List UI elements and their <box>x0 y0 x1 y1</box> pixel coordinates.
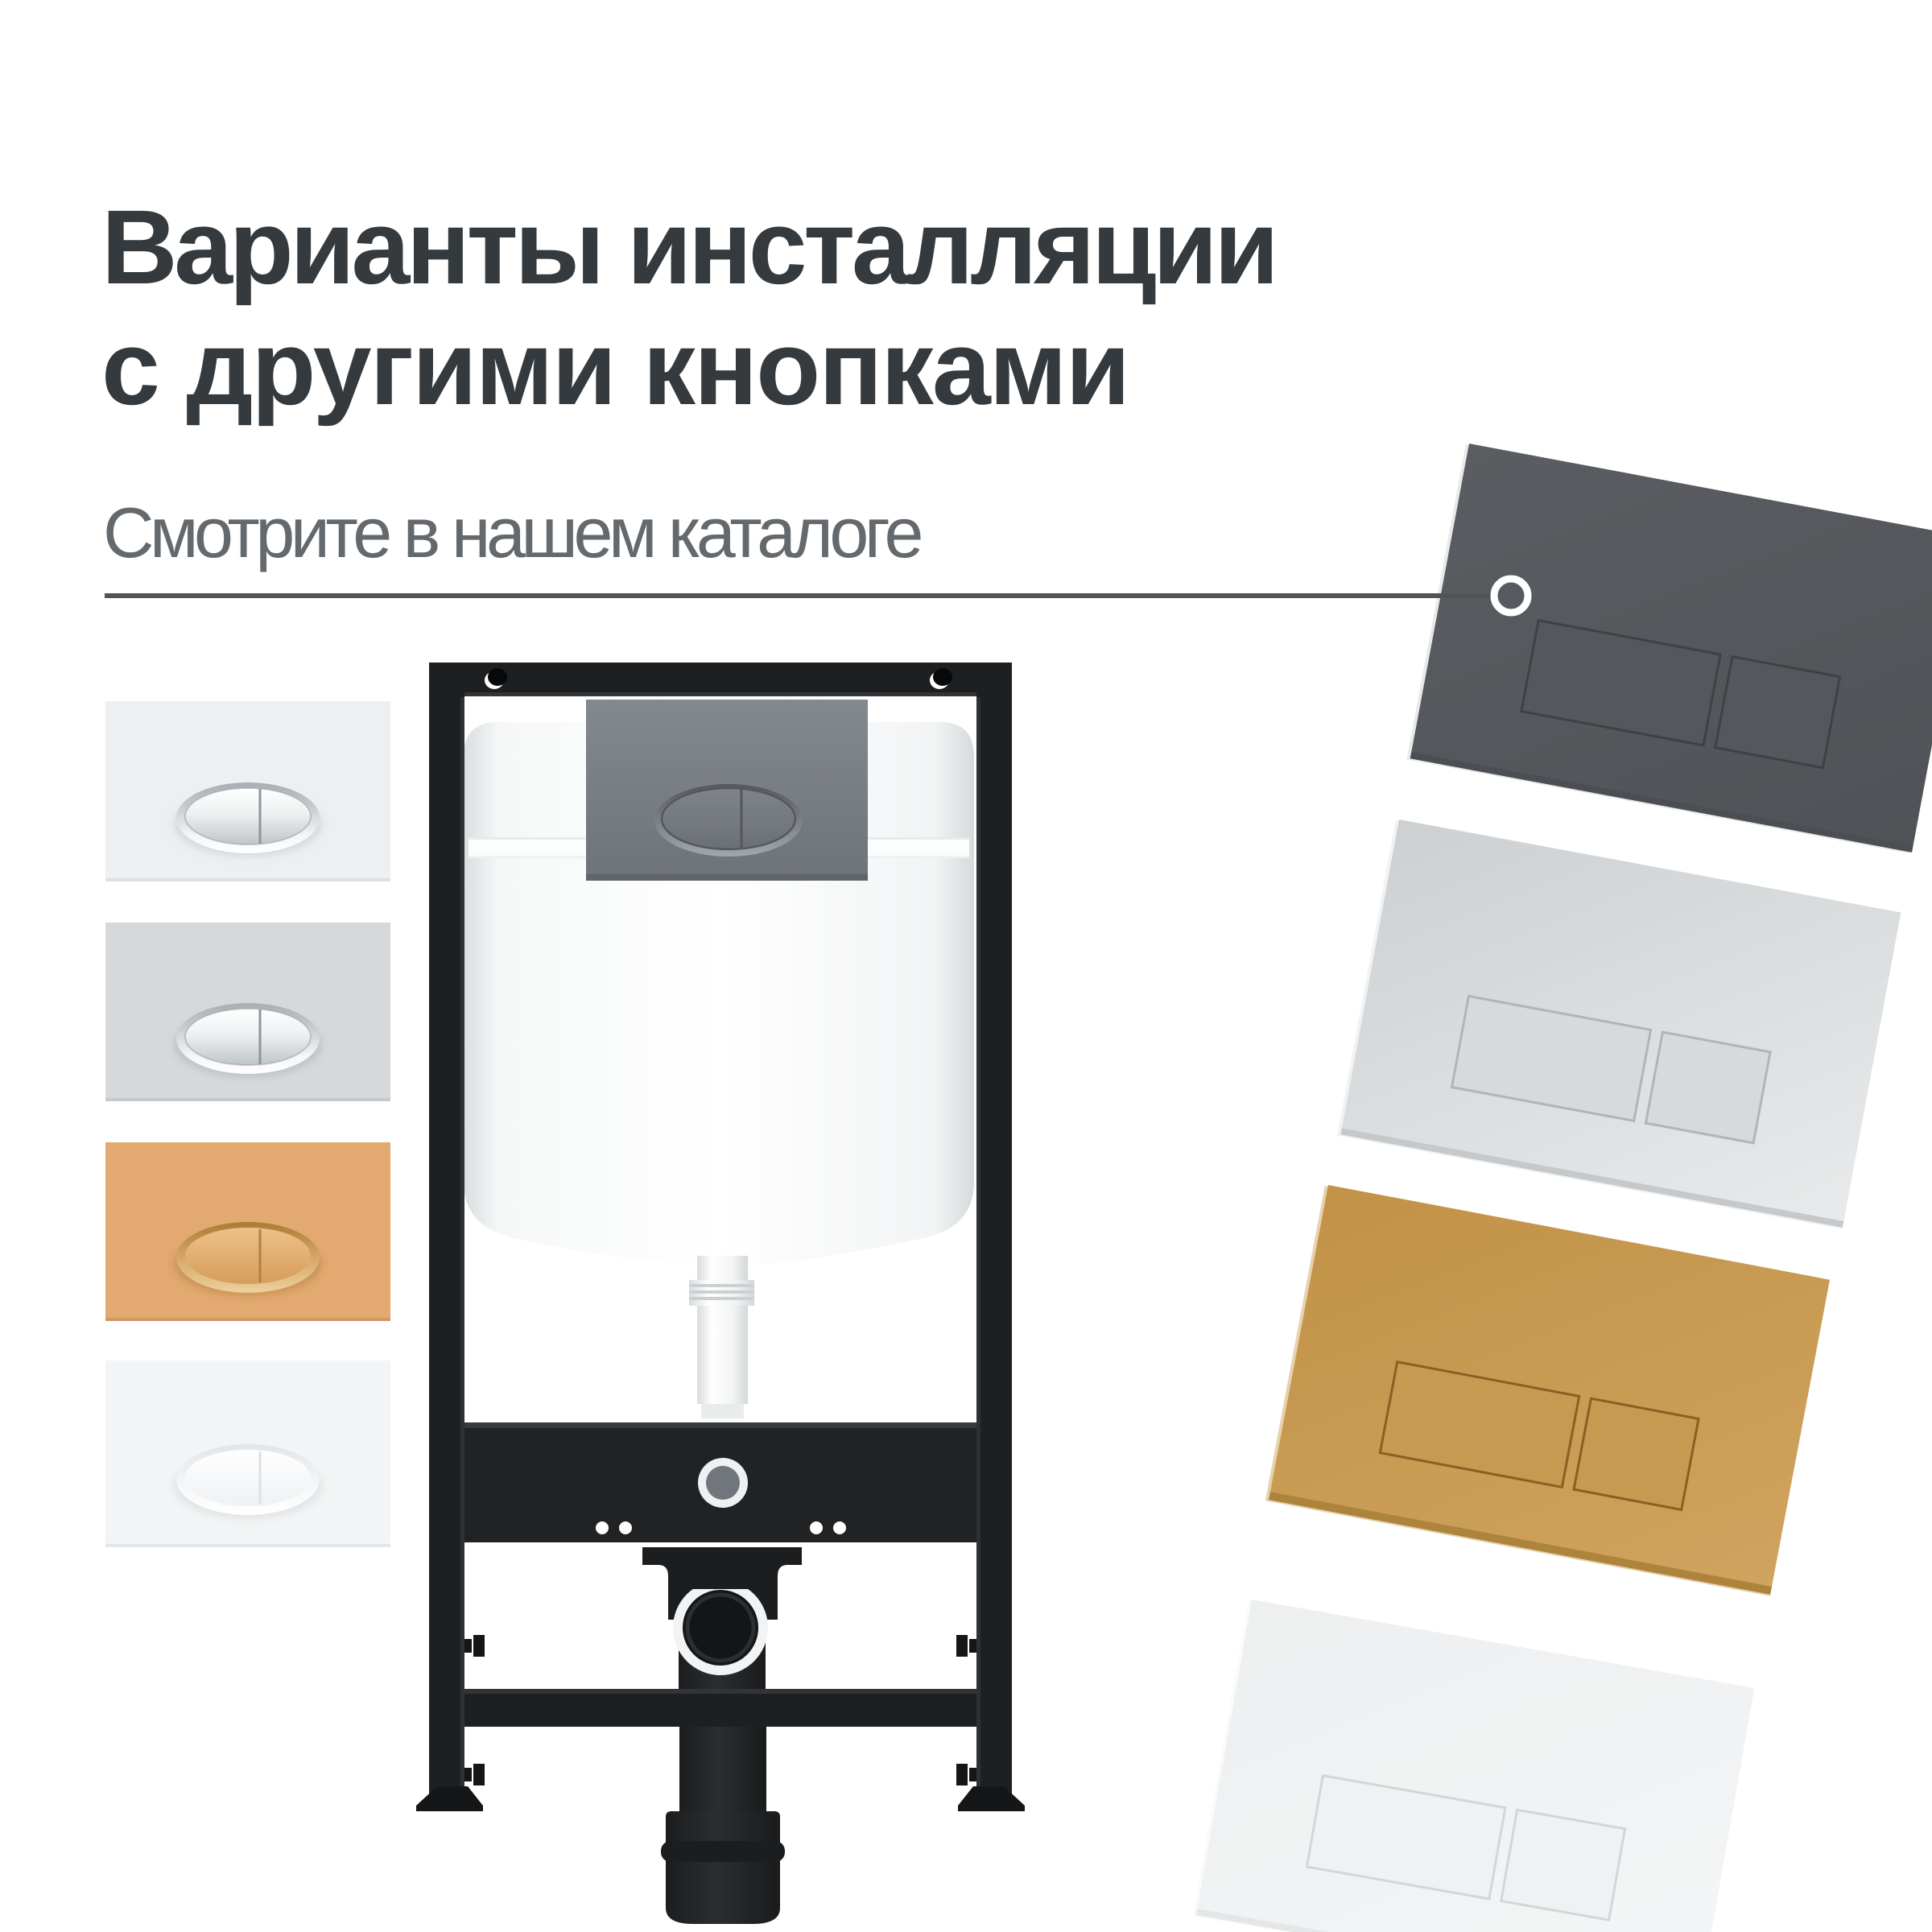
svg-text:Смотрите в нашем каталоге: Смотрите в нашем каталоге <box>103 493 922 572</box>
svg-text:с другими кнопками: с другими кнопками <box>101 308 1129 427</box>
svg-text:Варианты инсталляции: Варианты инсталляции <box>101 188 1275 306</box>
